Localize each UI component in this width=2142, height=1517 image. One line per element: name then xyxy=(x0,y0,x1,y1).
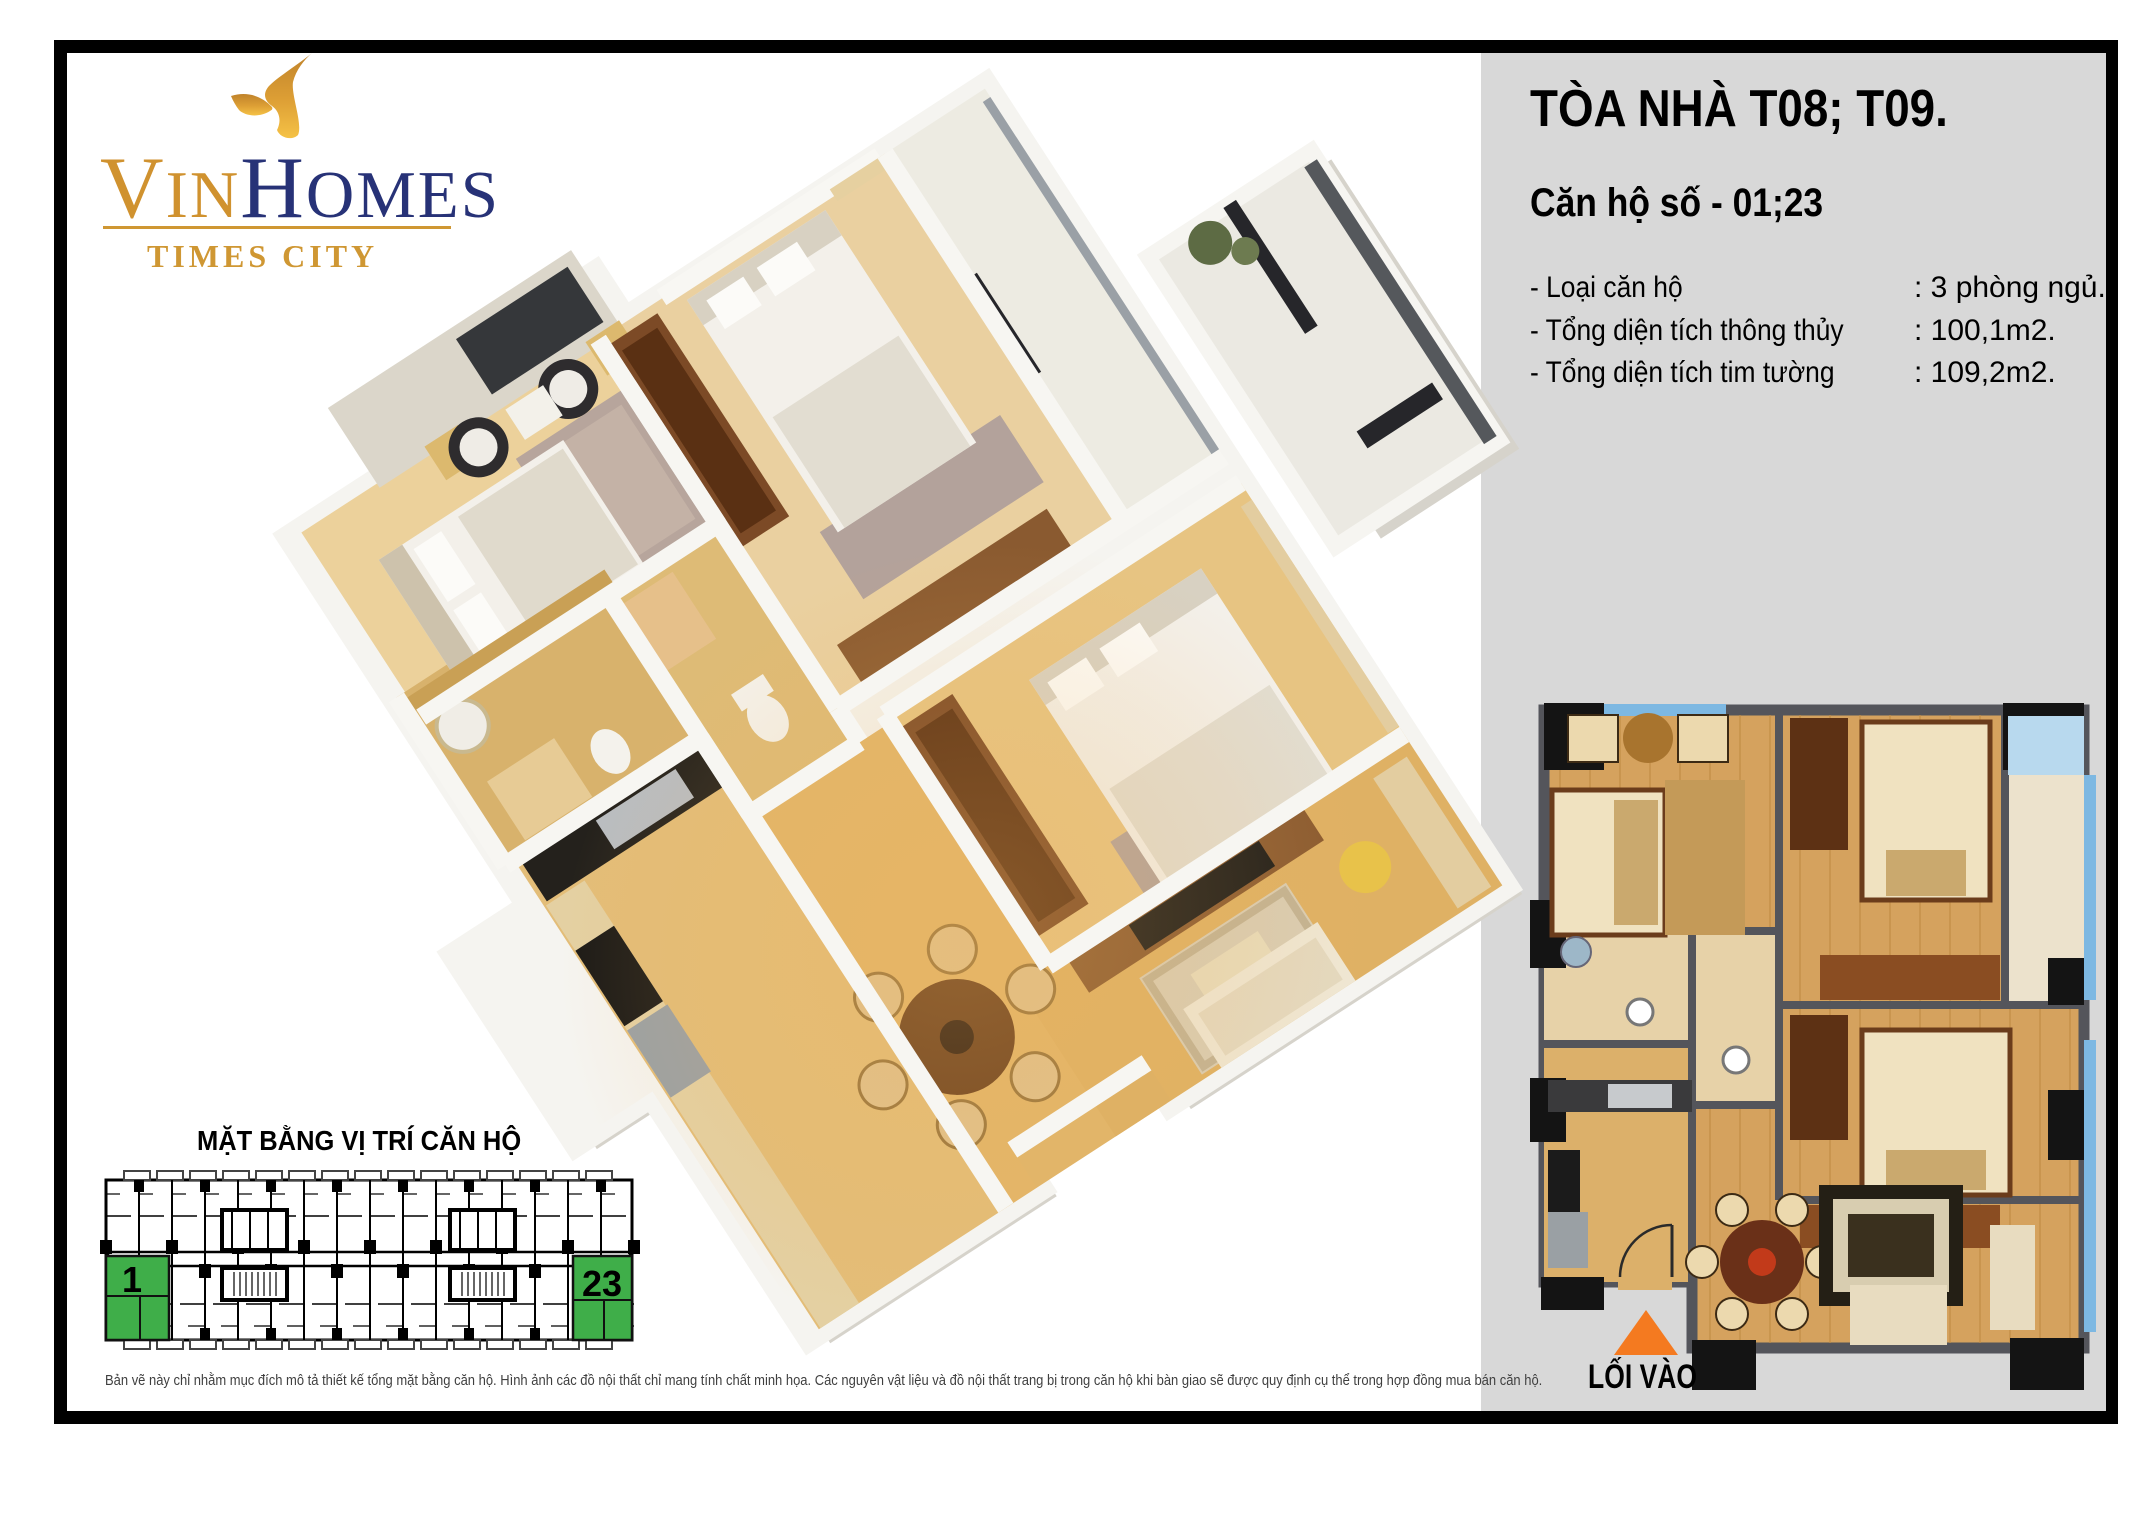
svg-text:23: 23 xyxy=(582,1263,622,1304)
svg-text:1: 1 xyxy=(122,1259,142,1300)
